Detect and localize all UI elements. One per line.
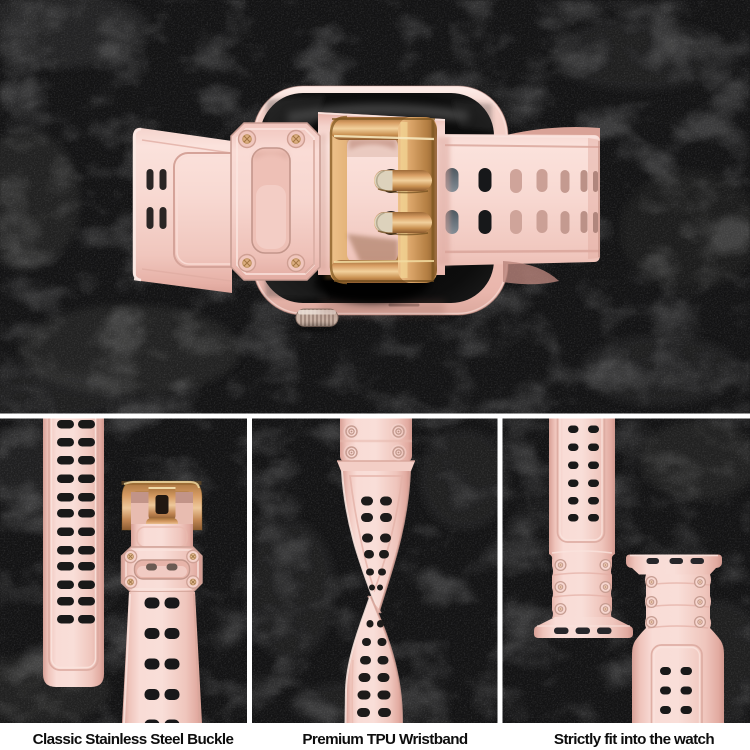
svg-text:Classic Stainless Steel Buckle: Classic Stainless Steel Buckle bbox=[33, 731, 234, 748]
svg-text:Premium TPU Wristband: Premium TPU Wristband bbox=[302, 731, 468, 748]
svg-text:Strictly fit into the watch: Strictly fit into the watch bbox=[554, 731, 714, 748]
